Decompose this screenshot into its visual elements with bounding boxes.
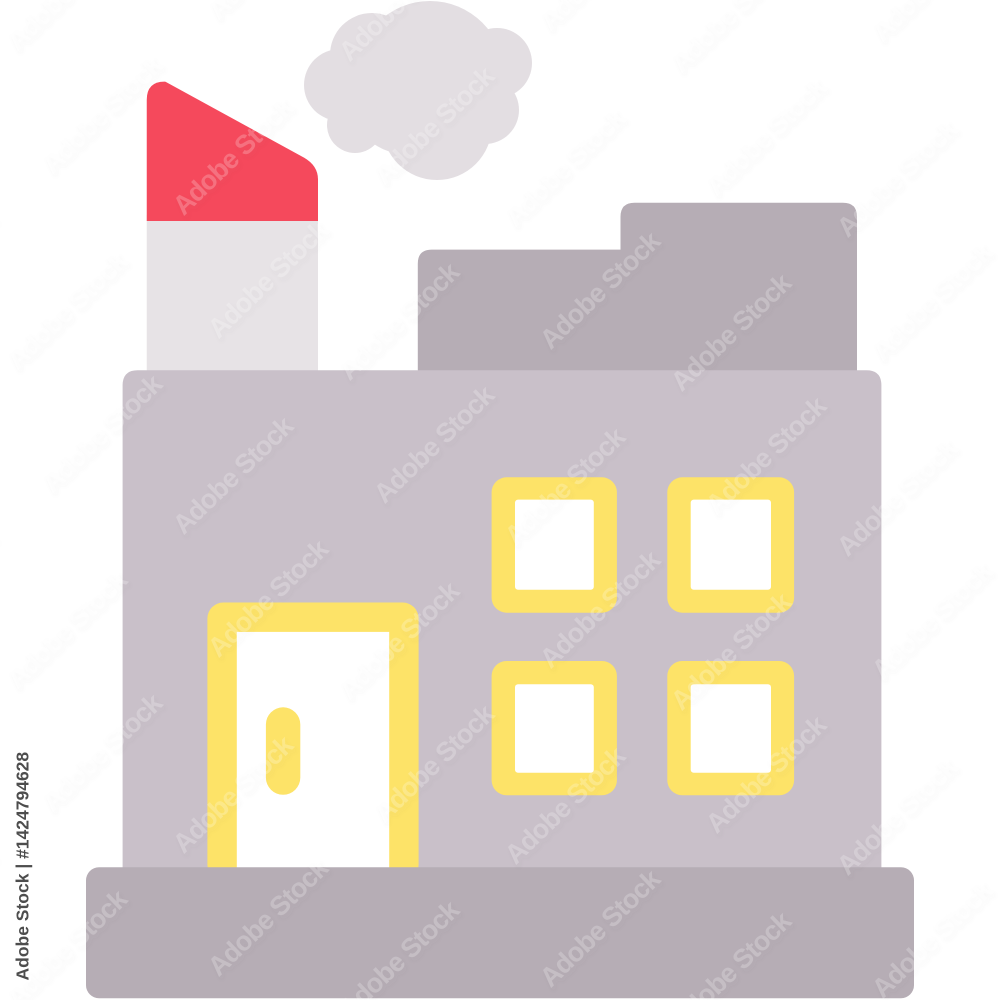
svg-text:Adobe Stock | #1424794628: Adobe Stock | #1424794628: [13, 752, 33, 981]
